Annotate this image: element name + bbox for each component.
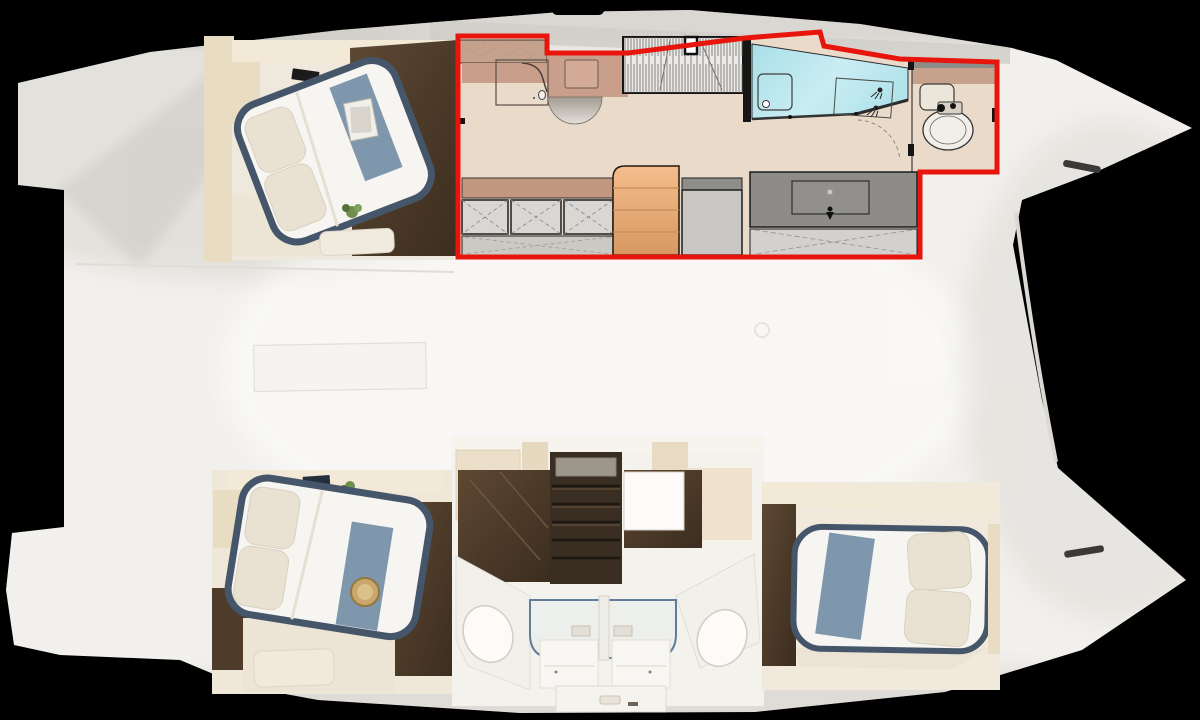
stair-landing	[556, 458, 616, 476]
jug-icon	[539, 91, 546, 100]
pillow	[907, 531, 973, 591]
plan-vanity	[750, 172, 917, 255]
wc-shelf	[912, 68, 997, 84]
layout-canvas	[0, 0, 1200, 720]
pillow	[243, 485, 301, 550]
hinge-dot	[788, 115, 792, 119]
cabinet	[652, 442, 688, 472]
vanity-unit	[540, 640, 598, 688]
forward-cabin-top	[204, 36, 458, 262]
midship-bathrooms	[452, 436, 764, 712]
double-bed	[793, 526, 989, 651]
pillow	[232, 544, 291, 611]
table	[624, 472, 684, 530]
drain-icon	[828, 190, 833, 195]
bulkhead-wall	[743, 37, 751, 122]
storage-lockers	[462, 200, 613, 234]
pillow	[903, 588, 971, 647]
hull-wall	[988, 524, 1000, 654]
settee	[462, 178, 613, 198]
drain-icon	[763, 101, 770, 108]
faucet-icon	[555, 671, 558, 674]
fridge-cabinet	[682, 190, 742, 255]
tray-inner	[357, 584, 373, 600]
sink-icon	[614, 626, 632, 636]
wall-stub	[908, 144, 914, 156]
vanity-unit	[612, 640, 670, 688]
top-edge-hatch	[552, 4, 604, 15]
sink-icon	[565, 60, 598, 88]
drawer-knob	[600, 696, 620, 704]
forward-cabin-bottom	[212, 470, 454, 694]
shower-divider	[599, 596, 609, 660]
appliance-top	[682, 178, 742, 190]
bench	[319, 228, 394, 256]
faucet-icon	[950, 103, 956, 109]
catamaran-layout-stage	[0, 0, 1200, 720]
deck-hatch-outline	[254, 343, 427, 392]
wood-floor	[762, 504, 796, 666]
bench	[253, 649, 334, 688]
magazine	[350, 106, 371, 133]
highlighted-plan-overlay	[458, 32, 997, 257]
double-bed	[224, 474, 433, 640]
sink-icon	[572, 626, 590, 636]
faucet-icon	[937, 104, 945, 112]
jug-dot	[533, 97, 535, 99]
aft-cabin-bottom	[762, 482, 1000, 690]
faucet-icon	[649, 671, 652, 674]
drawer-handle	[628, 702, 638, 706]
cabin-wall	[204, 36, 234, 262]
